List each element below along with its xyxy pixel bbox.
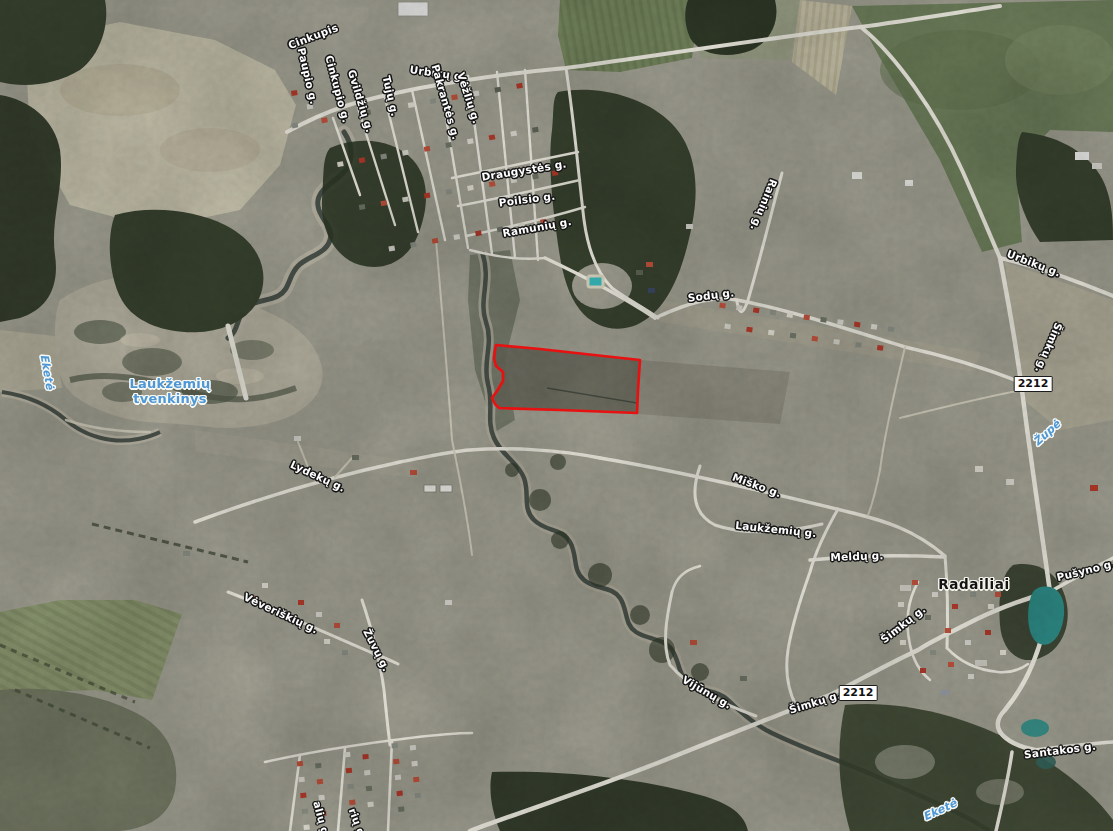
street-label-meldu-g: Meldų g. [830,549,884,563]
road-ref-badge-2212-south: 2212 [839,685,878,701]
water-label-laukzemiu-tvenkinys: Laukžemių tvenkinys [120,377,220,406]
town-label-radailiai: Radailiai [938,576,1009,592]
map-canvas[interactable]: Cinkupis Paupio g. Cinkupio g. Gvildžių … [0,0,1113,831]
road-ref-badge-2212-north: 2212 [1014,376,1053,392]
aerial-imagery [0,0,1113,831]
